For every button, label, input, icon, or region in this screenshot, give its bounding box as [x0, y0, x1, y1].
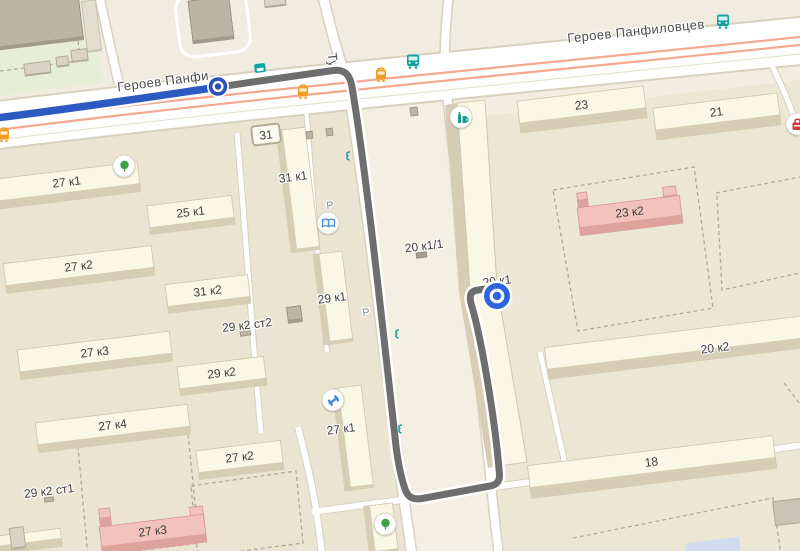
bus-icon[interactable]: [716, 13, 730, 29]
small-building: [9, 526, 27, 550]
bus-shelter-icon[interactable]: [253, 62, 267, 75]
map-square: [326, 128, 334, 137]
tree-icon[interactable]: [374, 513, 397, 536]
parking-label: P: [326, 200, 335, 213]
stop-sign-icon[interactable]: [396, 424, 404, 435]
garage: [70, 48, 88, 63]
bus-icon[interactable]: [406, 53, 420, 69]
small-gray-building: [773, 498, 800, 525]
tram-icon[interactable]: [375, 66, 388, 82]
parking-label: P: [362, 307, 371, 320]
map-square: [306, 131, 314, 140]
building-wing: [98, 507, 112, 526]
stop-sign-icon[interactable]: [344, 151, 352, 162]
street-label-vertical: Ту: [325, 52, 342, 68]
library-icon[interactable]: [317, 212, 340, 235]
beer-shop-icon[interactable]: [450, 106, 473, 129]
tram-icon[interactable]: [297, 83, 310, 99]
garage: [55, 55, 69, 68]
house-plate-31: 31: [250, 122, 282, 146]
tree-icon[interactable]: [113, 155, 136, 178]
tram-icon[interactable]: [0, 126, 11, 142]
tall-gray-building[interactable]: [187, 0, 234, 44]
map-square: [409, 107, 418, 117]
small-dark-building: [286, 305, 303, 324]
stop-sign-icon[interactable]: [393, 329, 401, 340]
gym-icon[interactable]: [322, 389, 345, 412]
map-canvas[interactable]: 27 к1 25 к1 27 к2 31 к2 27 к3 29 к2 27 к…: [0, 0, 800, 551]
